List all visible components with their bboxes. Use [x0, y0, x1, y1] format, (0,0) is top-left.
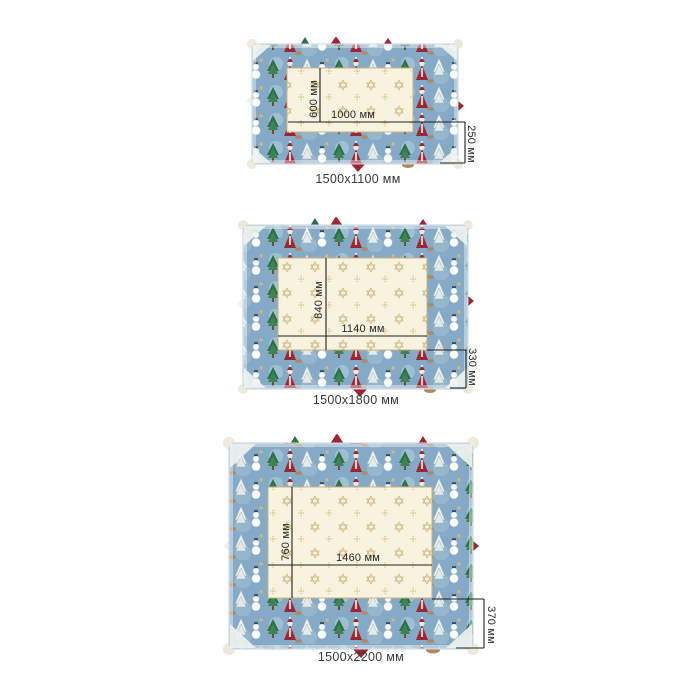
- inner-height-label: 760 мм: [280, 523, 292, 561]
- cloth-center-field: [268, 487, 432, 598]
- size-caption: 1500х1100 мм: [315, 172, 400, 186]
- size-caption: 1500х2200 мм: [318, 650, 404, 664]
- inner-width-label: 1460 мм: [336, 552, 380, 564]
- border-width-label: 370 мм: [485, 606, 497, 644]
- tablecloth-1500x2200: 1460 мм 760 мм 370 мм 1500х2200 мм: [223, 432, 497, 664]
- inner-width-label: 1140 мм: [341, 323, 384, 335]
- size-caption: 1500х1800 мм: [313, 393, 399, 407]
- border-width-label: 250 мм: [465, 125, 477, 163]
- inner-width-label: 1000 мм: [331, 109, 375, 121]
- size-diagram-canvas: 1000 мм 600 мм 250 мм 1500х1100 мм 11: [0, 0, 700, 700]
- border-width-label: 330 мм: [466, 348, 478, 386]
- inner-height-label: 840 мм: [313, 281, 325, 319]
- tablecloth-size-diagram-page: 1000 мм 600 мм 250 мм 1500х1100 мм 11: [0, 0, 700, 700]
- tablecloth-1500x1800: 1140 мм 840 мм 330 мм 1500х1800 мм: [237, 215, 478, 407]
- tablecloth-1500x1100: 1000 мм 600 мм 250 мм 1500х1100 мм: [246, 35, 477, 186]
- inner-height-label: 600 мм: [308, 80, 320, 118]
